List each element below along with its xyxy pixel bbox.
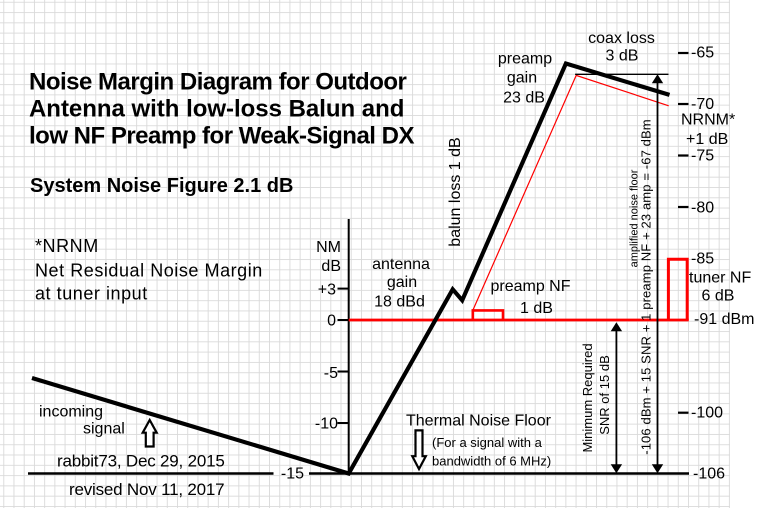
svg-text:coax loss: coax loss [588,30,655,47]
svg-text:NM: NM [316,239,341,256]
svg-text:gain: gain [507,70,537,87]
svg-text:Thermal Noise Floor: Thermal Noise Floor [406,412,552,429]
svg-text:-10: -10 [315,415,338,432]
svg-text:23 dB: 23 dB [503,90,545,107]
svg-text:low NF Preamp for Weak-Signal: low NF Preamp for Weak-Signal DX [29,122,414,149]
svg-text:*NRNM: *NRNM [35,236,99,256]
svg-text:tuner NF: tuner NF [689,270,751,287]
svg-text:18 dBd: 18 dBd [374,294,425,311]
svg-text:-80: -80 [691,199,714,216]
svg-text:+3: +3 [318,281,336,298]
svg-text:-65: -65 [691,45,714,62]
svg-text:Net Residual Noise Margin: Net Residual Noise Margin [35,261,263,281]
svg-text:System Noise Figure 2.1 dB: System Noise Figure 2.1 dB [30,175,293,197]
svg-text:1 dB: 1 dB [520,300,553,317]
svg-text:-106: -106 [693,465,725,482]
svg-text:dB: dB [321,258,341,275]
svg-text:+1 dB: +1 dB [686,131,728,148]
svg-text:preamp NF: preamp NF [490,278,570,295]
svg-text:-91 dBm: -91 dBm [694,311,754,328]
svg-text:at tuner input: at tuner input [35,284,148,304]
svg-text:balun loss 1 dB: balun loss 1 dB [447,137,464,246]
svg-text:rabbit73, Dec 29, 2015: rabbit73, Dec 29, 2015 [57,452,225,471]
svg-text:-106 dBm + 15 SNR + 1 preamp N: -106 dBm + 15 SNR + 1 preamp NF + 23 amp… [639,119,654,455]
svg-text:incoming: incoming [39,404,103,421]
svg-text:SNR of 15 dB: SNR of 15 dB [597,355,612,435]
svg-text:-100: -100 [691,405,723,422]
svg-text:revised Nov 11, 2017: revised Nov 11, 2017 [69,480,224,499]
svg-text:-75: -75 [691,148,714,165]
svg-text:gain: gain [387,274,417,291]
svg-text:0: 0 [327,313,336,330]
svg-text:-15: -15 [281,465,304,482]
svg-text:bandwidth of 6 MHz): bandwidth of 6 MHz) [432,453,551,468]
svg-text:Antenna with low-loss Balun an: Antenna with low-loss Balun and [29,96,404,123]
svg-text:-85: -85 [691,250,714,267]
svg-text:-5: -5 [324,365,338,382]
svg-text:antenna: antenna [372,256,430,273]
svg-text:preamp: preamp [498,50,552,67]
svg-text:Noise Margin Diagram for Outdo: Noise Margin Diagram for Outdoor [29,69,407,96]
svg-text:Minimum Required: Minimum Required [580,343,595,452]
svg-text:signal: signal [83,421,125,438]
svg-text:6 dB: 6 dB [702,287,735,304]
svg-text:NRNM*: NRNM* [681,112,735,129]
svg-text:(For a signal with a: (For a signal with a [432,435,543,450]
svg-text:3 dB: 3 dB [606,47,639,64]
